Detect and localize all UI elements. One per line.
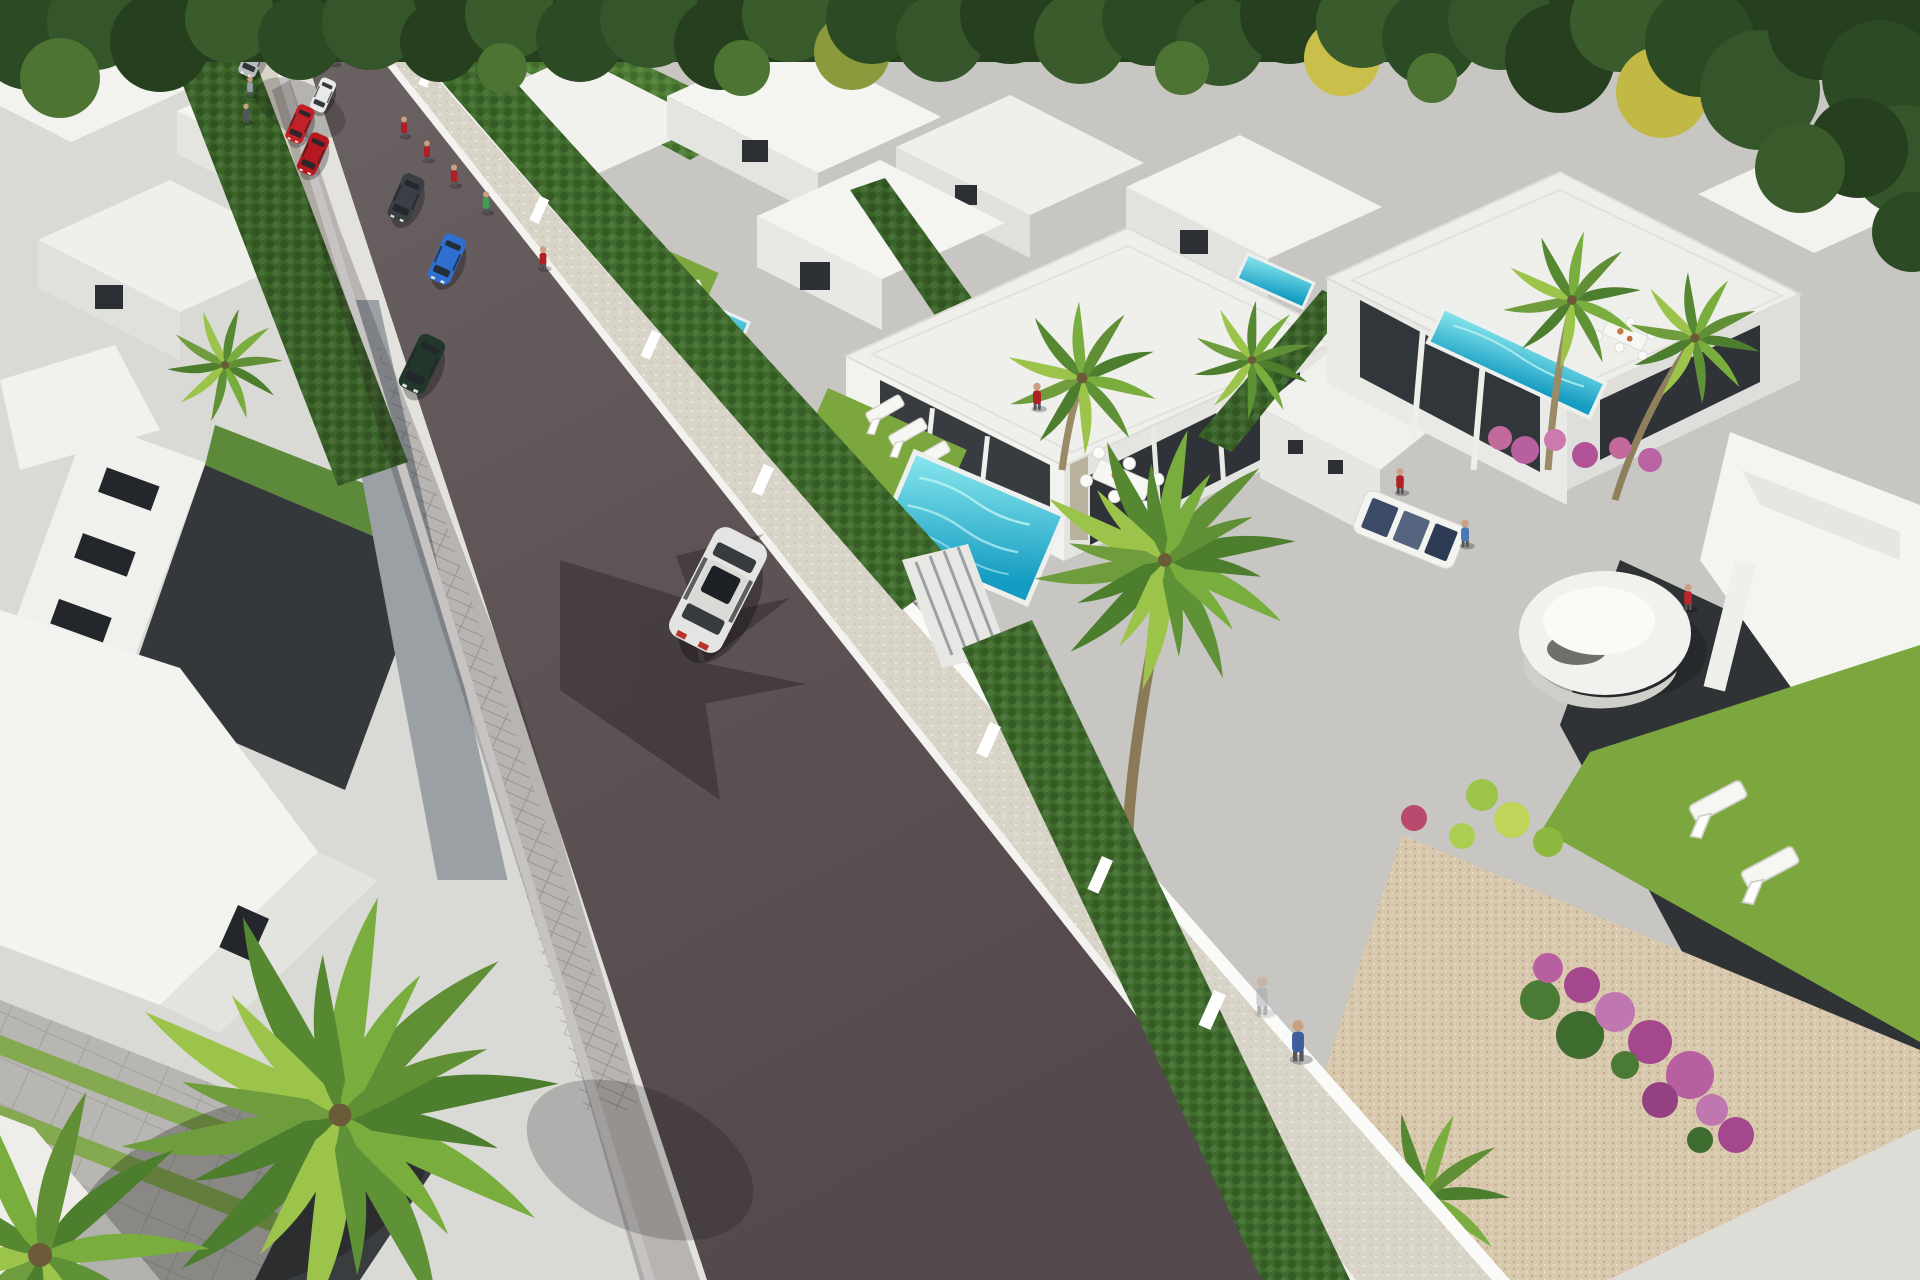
wing-window-2 bbox=[1328, 460, 1343, 474]
villa-window-2 bbox=[742, 140, 768, 162]
villa-glass-4 bbox=[800, 262, 830, 290]
villa-glass-5 bbox=[1180, 230, 1208, 254]
render-canvas bbox=[0, 0, 1920, 1280]
wing-window-1 bbox=[1288, 440, 1303, 454]
scene-svg bbox=[0, 0, 1920, 1280]
left-window-3 bbox=[95, 285, 123, 309]
